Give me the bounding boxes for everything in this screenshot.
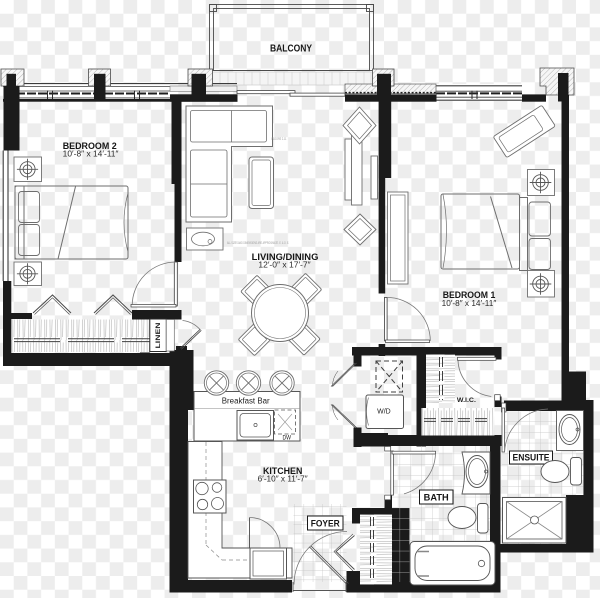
svg-text:LINEN: LINEN <box>155 322 162 348</box>
svg-text:BALCONY: BALCONY <box>270 44 312 55</box>
svg-text:ENSUITE: ENSUITE <box>513 453 550 463</box>
svg-text:10′-8″ x 14′-11″: 10′-8″ x 14′-11″ <box>442 299 497 308</box>
svg-text:W.I.C.: W.I.C. <box>457 397 476 404</box>
svg-text:12′-0″ x 17′-7″: 12′-0″ x 17′-7″ <box>258 261 311 270</box>
svg-text:W/D: W/D <box>377 409 391 416</box>
svg-text:DW: DW <box>282 435 291 442</box>
svg-text:ALL SIZES AND DIMENSIONS ARE A: ALL SIZES AND DIMENSIONS ARE APPROXIMATE… <box>227 241 289 245</box>
svg-text:6′-10″ x 11′-7″: 6′-10″ x 11′-7″ <box>258 475 308 484</box>
svg-text:BATH: BATH <box>424 492 449 502</box>
svg-text:FOYER: FOYER <box>311 518 340 528</box>
svg-text:10′-8″ x 14′-11″: 10′-8″ x 14′-11″ <box>63 150 119 159</box>
svg-text:FLOORS 2-11: FLOORS 2-11 <box>272 137 287 141</box>
svg-text:Breakfast Bar: Breakfast Bar <box>222 396 270 405</box>
